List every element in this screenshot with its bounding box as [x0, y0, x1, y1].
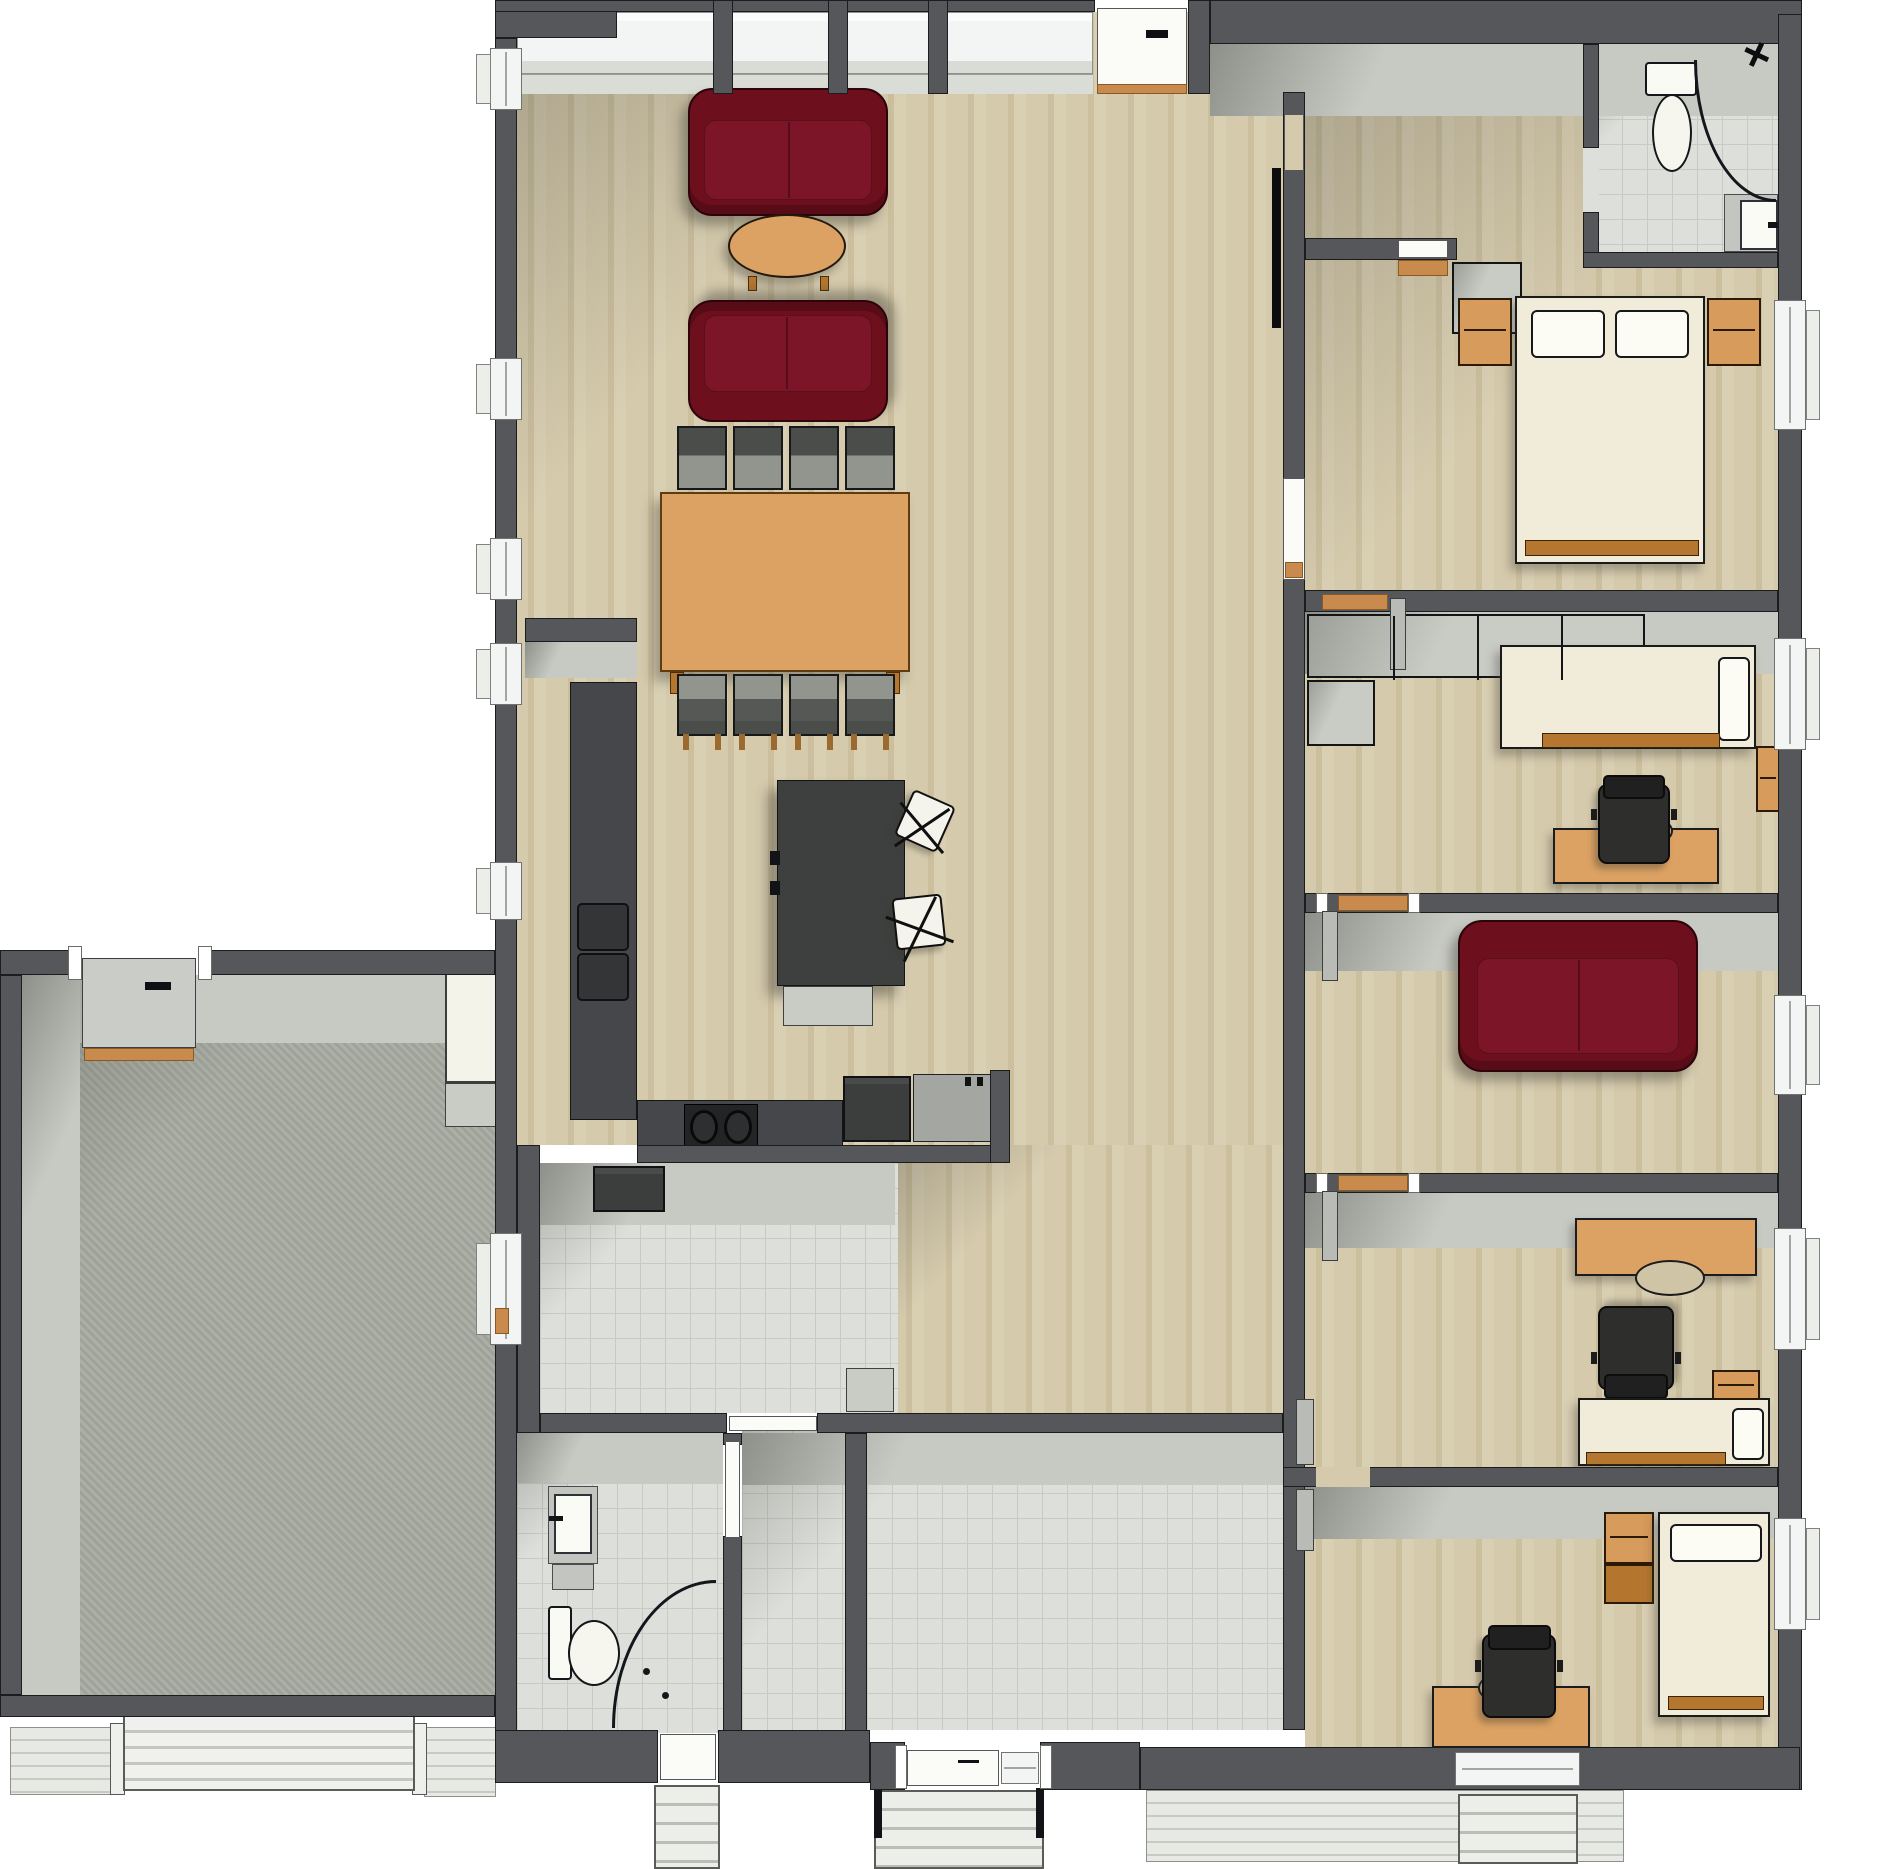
bedroom2-bed: [1500, 645, 1756, 749]
bedroom3-bed: [1578, 1398, 1770, 1466]
laundry-bottom-wall-b: [817, 1413, 1283, 1433]
lounge-door-jamb: [1316, 893, 1328, 913]
window: [490, 643, 522, 705]
bedroom2-threshold: [1322, 594, 1388, 610]
bedroom3-door-jamb: [1408, 1173, 1420, 1193]
closet-bath-divider-b: [1583, 212, 1599, 254]
great-room-east-threshold: [1285, 562, 1303, 578]
laundry-appliance: [593, 1166, 665, 1212]
master-toilet-tank: [1645, 62, 1697, 96]
foyer-top-wall-face: [742, 1433, 1283, 1485]
wing-top-wall: [1210, 0, 1802, 44]
lounge-door: [1322, 911, 1338, 981]
master-entry-threshold: [1398, 260, 1448, 276]
table-leg: [748, 276, 757, 291]
master-toilet-bowl: [1652, 94, 1692, 172]
dining-chair: [733, 674, 783, 736]
hall-opening: [1285, 115, 1303, 170]
window-sill: [1806, 1238, 1820, 1340]
garage-left-wall-face: [22, 975, 80, 1695]
window-sill: [1806, 1005, 1820, 1085]
front-door: [907, 1750, 999, 1786]
window: [490, 48, 522, 110]
island-base-cabinet: [783, 986, 873, 1026]
window: [490, 862, 522, 920]
top-door-jamb-wall: [1188, 0, 1210, 94]
hall-divider-wall: [845, 1433, 867, 1733]
bedroom4-bed: [1658, 1512, 1770, 1717]
bedroom4-nightstand: [1604, 1512, 1654, 1564]
cooktop: [684, 1104, 758, 1146]
window-sill: [1806, 310, 1820, 420]
window: [490, 358, 522, 420]
window: [1774, 1228, 1806, 1350]
bottom-wall-d: [1040, 1742, 1140, 1790]
living-sofa-top: [688, 88, 888, 216]
kitchen-stub-wall: [525, 618, 637, 642]
bath-east-wall-b: [723, 1536, 742, 1733]
garage-rear-door-jamb: [198, 946, 212, 980]
bedroom4-door: [1296, 1489, 1314, 1551]
garage-floor: [22, 975, 495, 1695]
shower-drain: [643, 1668, 650, 1675]
bedroom3-door-jamb: [1316, 1173, 1328, 1193]
master-bath-bottom-wall: [1583, 252, 1778, 268]
window: [1774, 1518, 1806, 1630]
pillow: [1718, 657, 1750, 741]
dining-chair: [845, 426, 895, 490]
bed-foot-rail: [1668, 1696, 1764, 1710]
great-room-floor-lower: [895, 1145, 1283, 1430]
shower-drain: [662, 1692, 669, 1699]
kitchen-island: [777, 780, 905, 986]
bath-cabinet: [552, 1564, 594, 1590]
counter-appliance: [577, 903, 629, 951]
island-pull: [770, 881, 780, 895]
bedroom2-wardrobe: [1307, 680, 1375, 746]
garage-top-wall-b: [200, 950, 495, 975]
back-door-threshold: [1097, 84, 1187, 94]
dining-chair: [789, 426, 839, 490]
living-sofa-bottom: [688, 300, 888, 422]
laundry-box: [846, 1368, 894, 1412]
bedroom2-nightstand: [1756, 746, 1780, 812]
window-sill: [476, 544, 491, 594]
master-nightstand-left: [1458, 298, 1512, 366]
bed-foot-rail: [1586, 1452, 1726, 1465]
master-entry-door: [1398, 240, 1448, 258]
lounge-threshold: [1338, 895, 1408, 911]
bedroom3-nightstand: [1712, 1370, 1760, 1400]
folding-chair: [891, 894, 946, 951]
coffee-table: [728, 214, 846, 278]
window-threshold: [495, 1308, 509, 1334]
wall-tv: [1272, 168, 1281, 328]
pillow: [1670, 1524, 1762, 1562]
bottom-wall-b: [718, 1730, 870, 1783]
window-sill: [476, 364, 491, 414]
bedroom3-desk: [1575, 1218, 1757, 1276]
master-nightstand-right: [1707, 298, 1761, 366]
window-mullion: [928, 0, 948, 94]
dining-chair: [677, 426, 727, 490]
floor-plan: [0, 0, 1897, 1869]
porch-steps: [1458, 1794, 1578, 1864]
master-bath-door-gap: [1583, 148, 1599, 212]
dining-chair: [677, 674, 727, 736]
back-door: [1097, 8, 1187, 92]
window: [1455, 1752, 1580, 1786]
wardrobe-divider: [1477, 616, 1479, 680]
window: [1774, 995, 1806, 1095]
laundry-door: [729, 1416, 817, 1431]
pillow: [1615, 310, 1689, 358]
kitchen-bottom-wall: [637, 1145, 995, 1163]
bath-toilet-bowl: [568, 1620, 620, 1686]
master-faucet: [1768, 222, 1778, 228]
window: [1774, 300, 1806, 430]
window-sill: [476, 54, 491, 104]
garage-door: [123, 1715, 415, 1791]
closet-bath-divider-a: [1583, 44, 1599, 148]
bed-foot-rail: [1525, 540, 1699, 556]
window-sill: [1806, 648, 1820, 740]
garage-apron-left: [10, 1727, 112, 1795]
garage-left-wall: [0, 975, 22, 1695]
laundry-bottom-wall-a: [540, 1413, 727, 1433]
desk-cutout: [1635, 1260, 1705, 1296]
window: [490, 538, 522, 600]
fridge: [913, 1074, 991, 1142]
window-sill: [1806, 1528, 1820, 1620]
bedroom3-office-chair: [1598, 1306, 1674, 1390]
lounge-door-jamb: [1408, 893, 1420, 913]
garage-rear-door-threshold: [84, 1048, 194, 1061]
stoop-front: [874, 1790, 1044, 1869]
table-leg: [820, 276, 829, 291]
bedroom4-door-gap: [1316, 1467, 1370, 1487]
front-door-jamb: [1040, 1745, 1052, 1789]
bathroom-top-wall-face: [517, 1433, 723, 1483]
pillow: [1732, 1408, 1764, 1460]
wall-oven: [843, 1076, 911, 1142]
stoop-rail-left: [874, 1788, 882, 1838]
bed-foot-rail: [1542, 733, 1720, 748]
stoop-left: [654, 1785, 720, 1869]
stoop-rail-right: [1036, 1788, 1044, 1838]
front-door-jamb: [895, 1745, 907, 1789]
master-shower-head: [1736, 40, 1776, 70]
dining-chair: [845, 674, 895, 736]
garage-bottom-wall: [0, 1695, 495, 1717]
bath-sink: [554, 1494, 592, 1554]
island-pull: [770, 851, 780, 865]
bottom-wall-a: [495, 1730, 658, 1783]
dining-chair: [733, 426, 783, 490]
lounge-sofa: [1458, 920, 1698, 1072]
bath-hall-door: [725, 1441, 740, 1538]
kitchen-counter-left: [570, 682, 637, 1120]
side-entry-door: [660, 1734, 716, 1780]
garage-apron-right: [424, 1727, 496, 1797]
counter-appliance: [577, 953, 629, 1001]
master-bed: [1515, 296, 1705, 564]
garage-top-wall-a: [0, 950, 75, 975]
dining-table: [660, 492, 910, 672]
bedroom3-hall-door: [1296, 1399, 1314, 1465]
top-wall-header: [495, 0, 1095, 12]
window: [1774, 638, 1806, 750]
bedroom3-threshold: [1338, 1175, 1408, 1191]
window-sill: [476, 649, 491, 699]
kitchen-stub-face: [525, 642, 637, 678]
pillow: [1531, 310, 1605, 358]
wardrobe-divider: [1393, 616, 1395, 680]
garage-rear-door-jamb: [68, 946, 82, 980]
bath-faucet: [549, 1516, 563, 1521]
dining-chair: [789, 674, 839, 736]
window-mullion: [713, 0, 733, 94]
window-sill: [476, 1243, 491, 1335]
garage-rear-door: [82, 958, 196, 1048]
bedroom4-office-chair: [1482, 1634, 1556, 1718]
bedroom3-door: [1322, 1191, 1338, 1261]
kitchen-return-stub: [990, 1070, 1010, 1163]
window-mullion: [828, 0, 848, 94]
bedroom2-office-chair: [1598, 784, 1670, 864]
front-door-sidelite: [1001, 1752, 1039, 1784]
bedroom4-drawer-box: [1604, 1564, 1654, 1604]
wardrobe-divider: [1561, 616, 1563, 680]
window-sill: [476, 868, 491, 914]
